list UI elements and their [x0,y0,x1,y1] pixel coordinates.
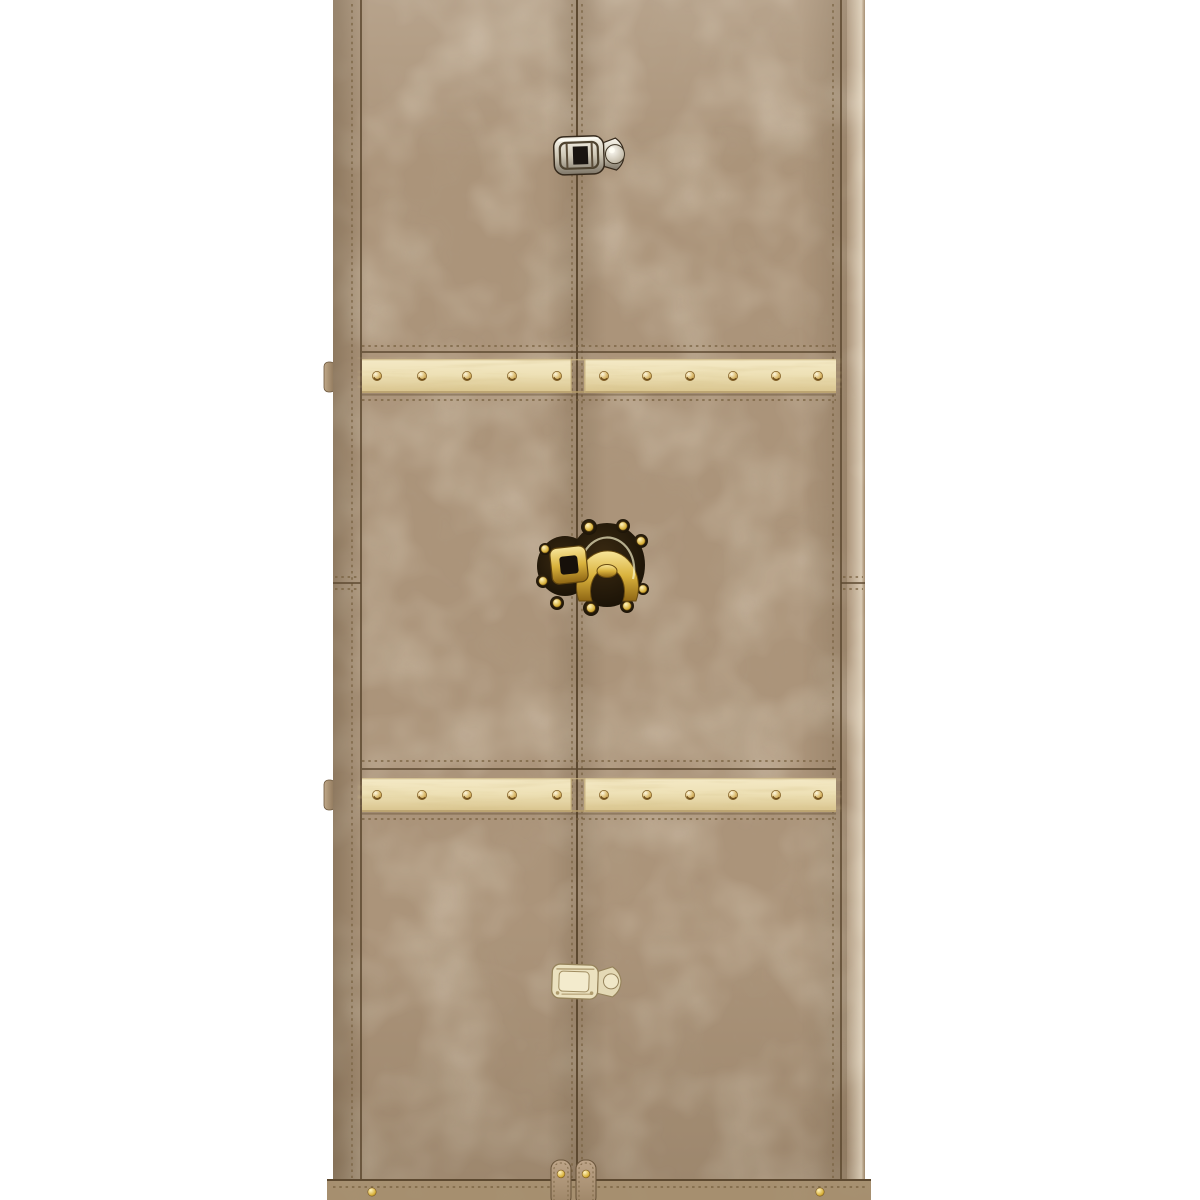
highlight-right-edge [847,0,865,1200]
strap-left [551,1160,571,1200]
strap-rivet [582,1170,590,1178]
lock-clasp [549,545,589,585]
wood-slat-bottom [362,778,836,814]
shade-left-edge [333,0,369,1200]
shade-right [801,0,847,1200]
base-band-rivet-right [816,1188,824,1196]
slat-grain [584,778,836,812]
slat-grain [584,359,836,393]
bottom-latch [551,964,621,1000]
base-band-texture [327,1180,871,1200]
product-photo-canvas [0,0,1200,1200]
trunk-illustration [333,0,865,1200]
top-latch [553,135,625,175]
strap-rivet [557,1170,565,1178]
base-band-rivet-left [368,1188,376,1196]
wood-slat-top [362,359,836,395]
strap-right [576,1160,596,1200]
lock-keyhole-cover [597,565,617,578]
trunk-wardrobe [333,0,865,1200]
base-band [327,1180,871,1200]
